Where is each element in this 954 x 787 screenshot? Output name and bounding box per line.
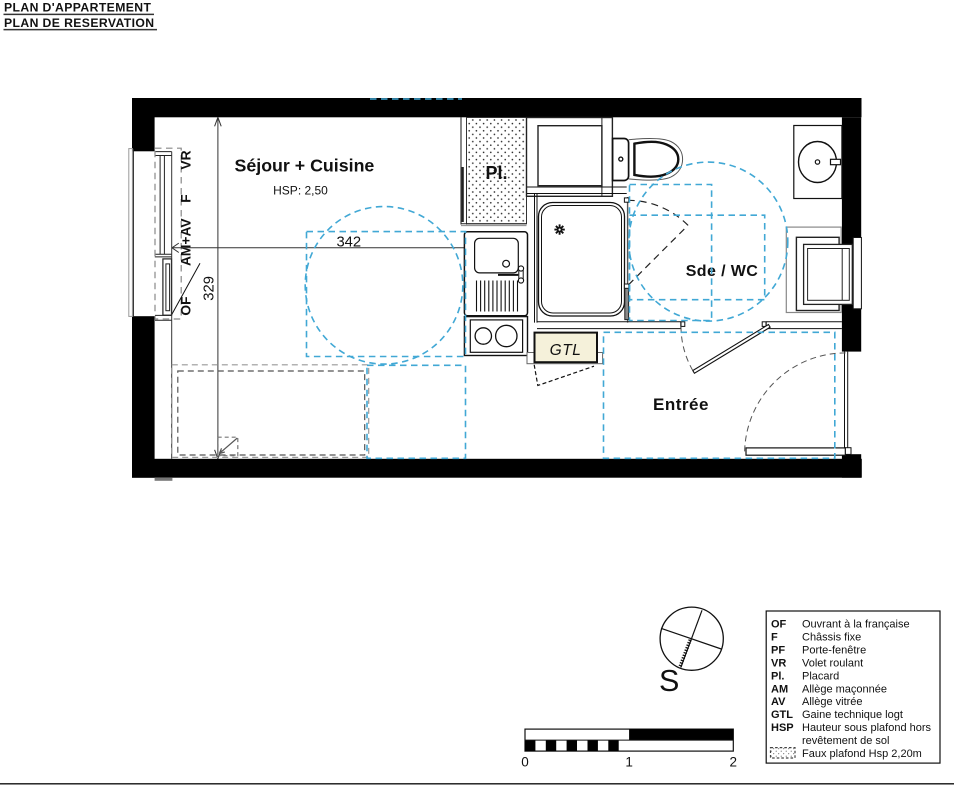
svg-text:Sde / WC: Sde / WC <box>686 263 759 280</box>
svg-text:Ouvrant à la française: Ouvrant à la française <box>802 619 910 631</box>
svg-text:Porte-fenêtre: Porte-fenêtre <box>802 644 866 656</box>
svg-text:PF: PF <box>771 644 785 656</box>
svg-text:F: F <box>179 194 194 202</box>
svg-text:Séjour + Cuisine: Séjour + Cuisine <box>235 156 375 176</box>
svg-text:AM: AM <box>771 683 788 695</box>
svg-text:Volet roulant: Volet roulant <box>802 657 863 669</box>
svg-text:GTL: GTL <box>550 342 582 359</box>
svg-text:342: 342 <box>336 234 361 250</box>
svg-text:revêtement de sol: revêtement de sol <box>802 735 889 747</box>
svg-text:Pl.: Pl. <box>771 670 784 682</box>
svg-text:PLAN D'APPARTEMENT: PLAN D'APPARTEMENT <box>4 1 151 15</box>
svg-text:2: 2 <box>730 755 738 770</box>
svg-text:Allège vitrée: Allège vitrée <box>802 696 863 708</box>
svg-text:VR: VR <box>179 150 194 169</box>
svg-text:VR: VR <box>771 657 786 669</box>
svg-text:Gaine technique logt: Gaine technique logt <box>802 709 903 721</box>
svg-text:HSP: 2,50: HSP: 2,50 <box>273 184 328 198</box>
svg-text:OF: OF <box>179 296 194 315</box>
svg-text:1: 1 <box>625 755 633 770</box>
svg-text:Placard: Placard <box>802 670 839 682</box>
svg-text:Hauteur sous plafond hors: Hauteur sous plafond hors <box>802 722 932 734</box>
svg-text:HSP: HSP <box>771 722 794 734</box>
svg-text:Allège maçonnée: Allège maçonnée <box>802 683 887 695</box>
svg-text:GTL: GTL <box>771 709 793 721</box>
svg-text:Faux plafond Hsp 2,20m: Faux plafond Hsp 2,20m <box>802 748 922 760</box>
svg-text:Entrée: Entrée <box>653 395 709 414</box>
svg-text:329: 329 <box>202 276 218 301</box>
svg-text:S: S <box>659 664 679 698</box>
svg-text:Pl.: Pl. <box>486 163 508 183</box>
svg-text:0: 0 <box>521 755 529 770</box>
svg-text:F: F <box>771 632 778 644</box>
svg-text:AV: AV <box>771 696 786 708</box>
svg-text:Châssis fixe: Châssis fixe <box>802 632 861 644</box>
svg-text:AM+AV: AM+AV <box>179 218 194 266</box>
svg-text:OF: OF <box>771 619 787 631</box>
svg-text:PLAN DE RESERVATION: PLAN DE RESERVATION <box>4 16 154 30</box>
